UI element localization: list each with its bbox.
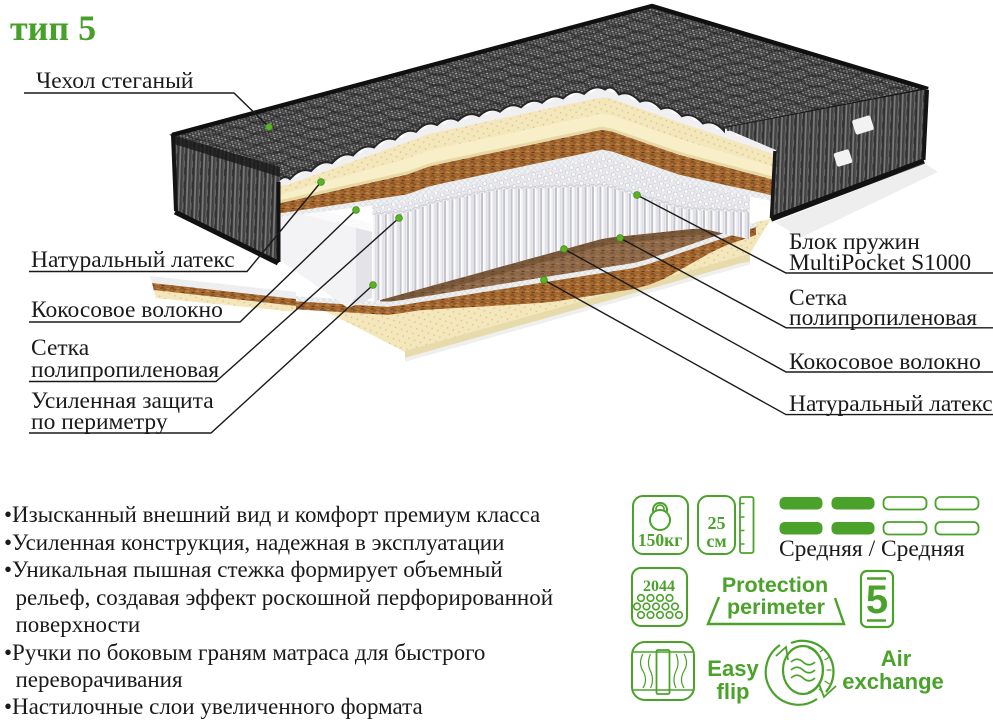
svg-text:25: 25 <box>708 513 726 533</box>
svg-text:•Изысканный внешний вид и комф: •Изысканный внешний вид и комфорт премиу… <box>4 502 540 527</box>
svg-text:5: 5 <box>866 578 888 622</box>
svg-text:•Настилочные слои увеличенного: •Настилочные слои увеличенного формата <box>4 694 423 719</box>
svg-text:Air: Air <box>881 646 912 671</box>
svg-text:рельеф, создавая эффект роскош: рельеф, создавая эффект роскошной перфор… <box>4 585 553 610</box>
svg-text:flip: flip <box>717 679 750 704</box>
svg-text:Кокосовое волокно: Кокосовое волокно <box>789 349 981 375</box>
svg-text:perimeter: perimeter <box>727 595 826 619</box>
svg-text:Натуральный латекс: Натуральный латекс <box>31 247 235 273</box>
svg-text:переворачивания: переворачивания <box>4 667 183 692</box>
svg-text:•Уникальная пышная стежка форм: •Уникальная пышная стежка формирует объе… <box>4 557 503 582</box>
svg-text:Кокосовое волокно: Кокосовое волокно <box>31 297 223 323</box>
svg-text:Protection: Protection <box>722 573 828 597</box>
svg-text:•Ручки по боковым граням матра: •Ручки по боковым граням матраса для быс… <box>4 640 485 665</box>
svg-text:•Усиленная конструкция, надежн: •Усиленная конструкция, надежная в экспл… <box>4 530 504 555</box>
svg-text:поверхности: поверхности <box>4 612 140 637</box>
svg-text:полипропиленовая: полипропиленовая <box>789 305 977 331</box>
svg-text:MultiPocket S1000: MultiPocket S1000 <box>789 250 971 276</box>
svg-text:Натуральный латекс: Натуральный латекс <box>789 391 993 417</box>
svg-text:по периметру: по периметру <box>31 409 168 435</box>
svg-text:полипропиленовая: полипропиленовая <box>31 357 219 383</box>
svg-text:тип 5: тип 5 <box>10 8 96 48</box>
svg-text:Easy: Easy <box>707 656 759 681</box>
svg-text:150кг: 150кг <box>638 530 682 550</box>
svg-text:Средняя / Средняя: Средняя / Средняя <box>779 536 965 562</box>
svg-text:exchange: exchange <box>842 669 944 694</box>
svg-text:Чехол стеганый: Чехол стеганый <box>36 68 194 94</box>
svg-text:см: см <box>706 531 726 551</box>
svg-text:2044: 2044 <box>643 578 675 595</box>
